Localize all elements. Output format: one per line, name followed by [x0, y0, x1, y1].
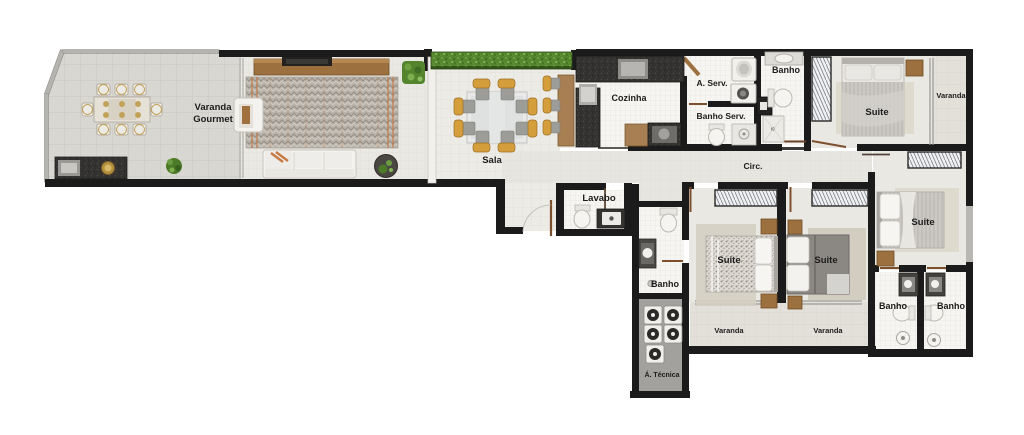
svg-text:Gourmet: Gourmet — [193, 114, 233, 125]
svg-text:Varanda: Varanda — [936, 91, 966, 100]
svg-text:Cozinha: Cozinha — [612, 93, 648, 103]
svg-text:Circ.: Circ. — [744, 161, 763, 171]
svg-text:Lavabo: Lavabo — [582, 193, 615, 204]
svg-text:Varanda: Varanda — [195, 102, 233, 113]
svg-text:Varanda: Varanda — [813, 326, 843, 335]
svg-text:Banho Serv.: Banho Serv. — [697, 111, 746, 121]
svg-text:Banho: Banho — [937, 301, 966, 311]
svg-text:Banho: Banho — [879, 301, 908, 311]
svg-text:Suite: Suite — [814, 255, 837, 266]
svg-text:Banho: Banho — [772, 65, 801, 75]
svg-text:Á. Técnica: Á. Técnica — [644, 370, 679, 379]
svg-text:Suite: Suite — [865, 107, 888, 118]
svg-text:A. Serv.: A. Serv. — [696, 78, 727, 88]
svg-text:Suite: Suite — [717, 255, 740, 266]
svg-text:Suite: Suite — [911, 217, 934, 228]
svg-text:Varanda: Varanda — [714, 326, 744, 335]
svg-text:Sala: Sala — [482, 155, 502, 166]
svg-text:Banho: Banho — [651, 279, 680, 289]
